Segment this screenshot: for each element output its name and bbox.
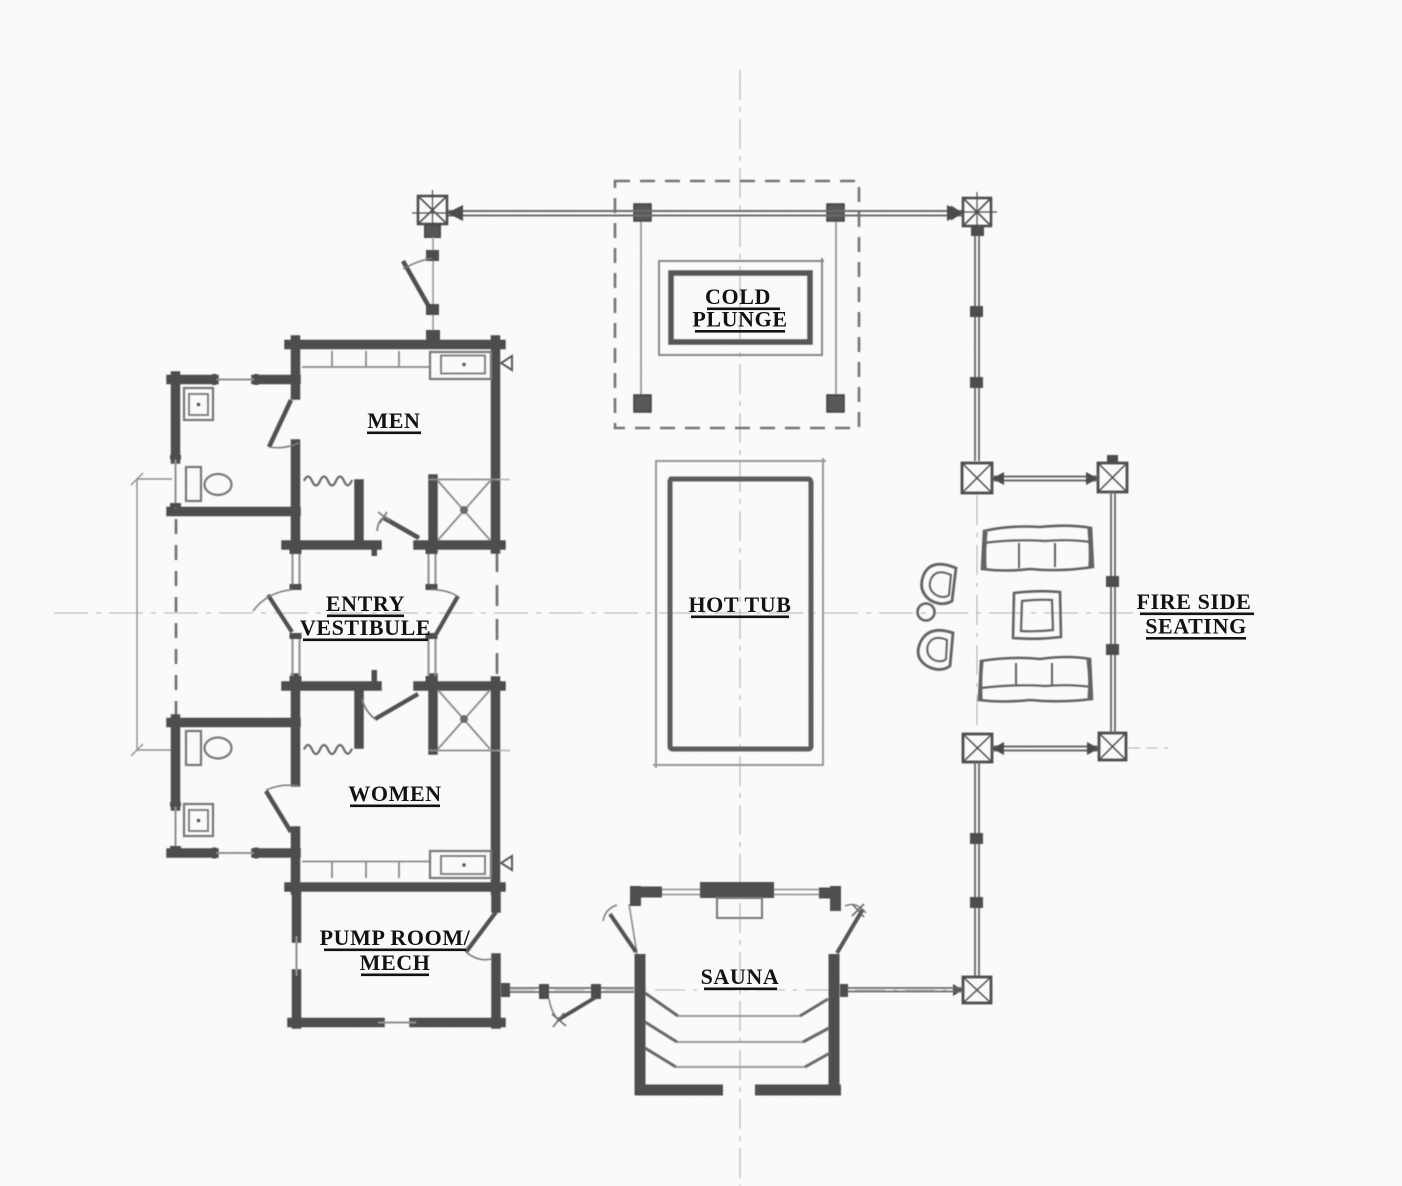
svg-text:PLUNGE: PLUNGE bbox=[692, 307, 787, 332]
svg-text:FIRE SIDE: FIRE SIDE bbox=[1137, 589, 1252, 614]
svg-text:HOT TUB: HOT TUB bbox=[688, 592, 791, 617]
svg-text:SAUNA: SAUNA bbox=[701, 964, 780, 989]
svg-text:MEN: MEN bbox=[367, 408, 420, 433]
svg-text:ENTRY: ENTRY bbox=[326, 591, 405, 616]
svg-text:WOMEN: WOMEN bbox=[348, 781, 441, 806]
svg-text:VESTIBULE: VESTIBULE bbox=[300, 615, 431, 640]
svg-text:COLD: COLD bbox=[705, 284, 771, 309]
svg-text:SEATING: SEATING bbox=[1145, 614, 1247, 639]
svg-text:MECH: MECH bbox=[360, 950, 431, 975]
svg-text:PUMP ROOM/: PUMP ROOM/ bbox=[320, 925, 471, 950]
